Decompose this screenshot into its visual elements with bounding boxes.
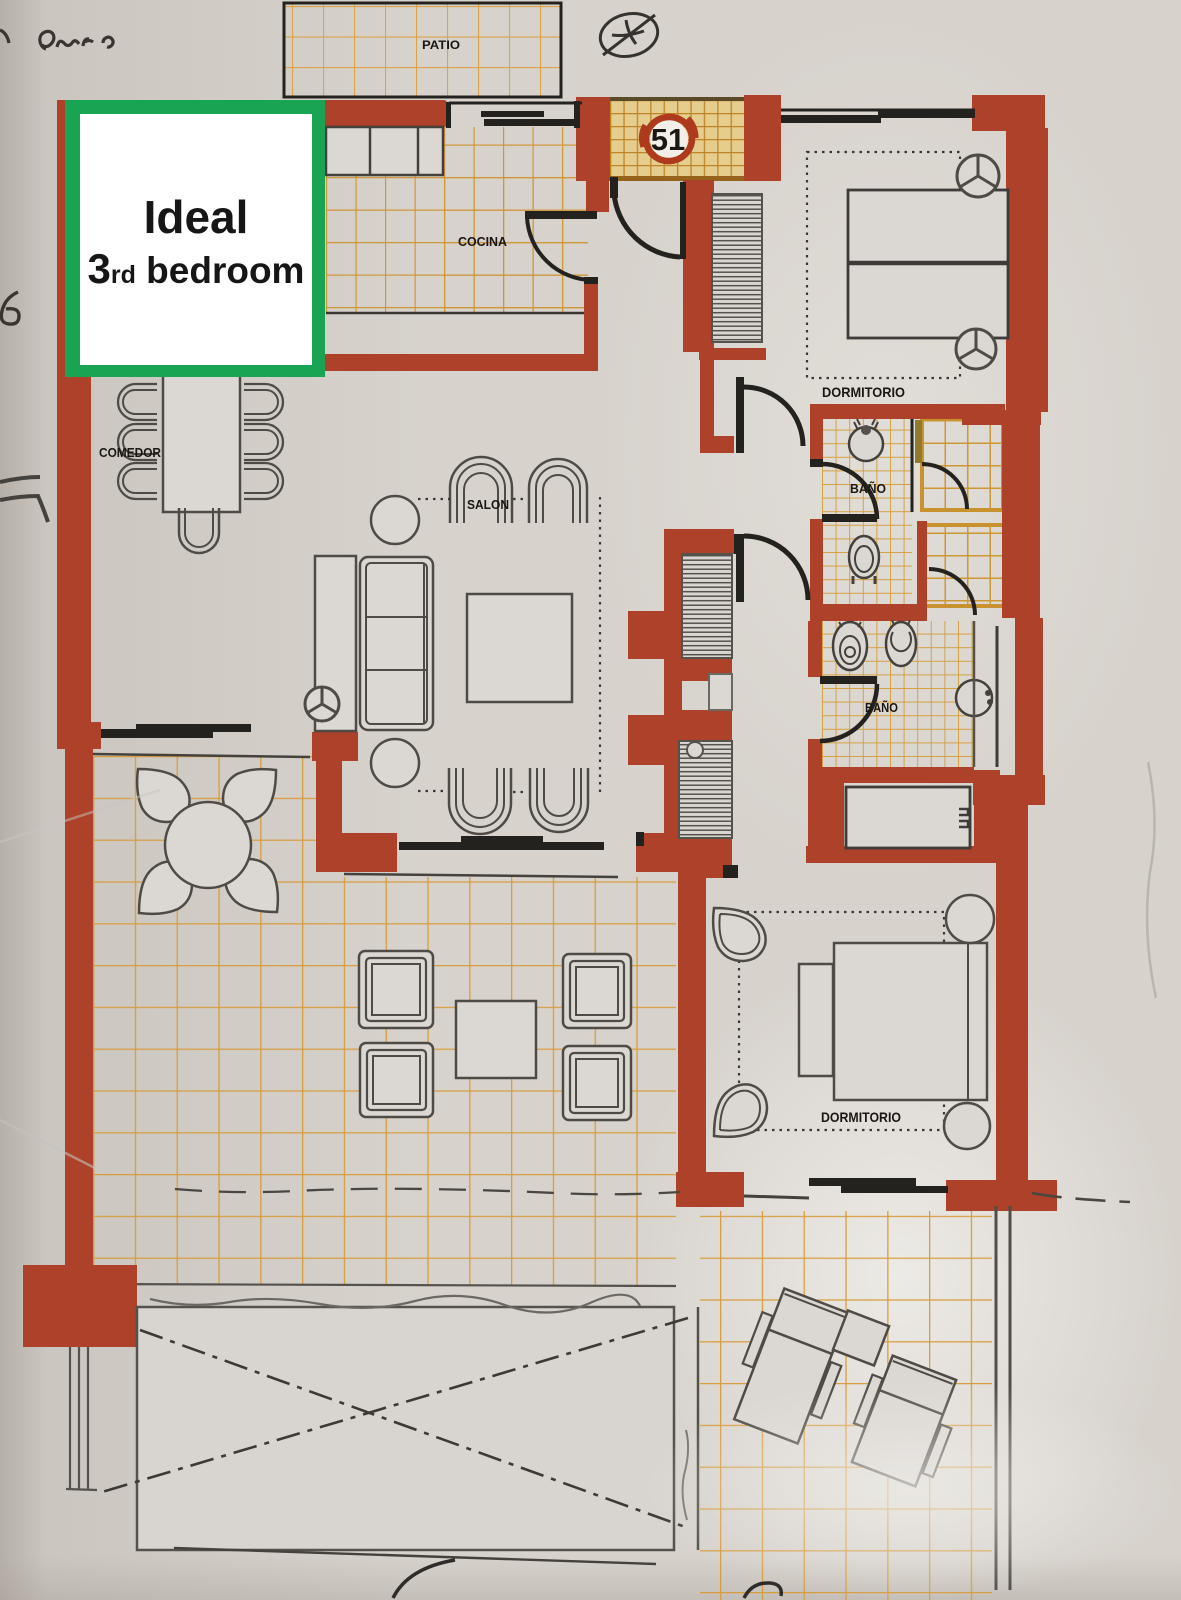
svg-text:51: 51 xyxy=(651,122,685,157)
svg-text:PATIO: PATIO xyxy=(422,38,460,52)
svg-text:BAÑO: BAÑO xyxy=(850,481,886,496)
svg-text:BAÑO: BAÑO xyxy=(865,700,898,715)
svg-text:Ideal: Ideal xyxy=(144,191,249,243)
svg-text:DORMITORIO: DORMITORIO xyxy=(821,1109,901,1125)
svg-text:COCINA: COCINA xyxy=(458,235,507,249)
svg-text:DORMITORIO: DORMITORIO xyxy=(822,384,905,400)
svg-text:SALON: SALON xyxy=(467,498,509,512)
svg-text:COMEDOR: COMEDOR xyxy=(99,446,161,460)
